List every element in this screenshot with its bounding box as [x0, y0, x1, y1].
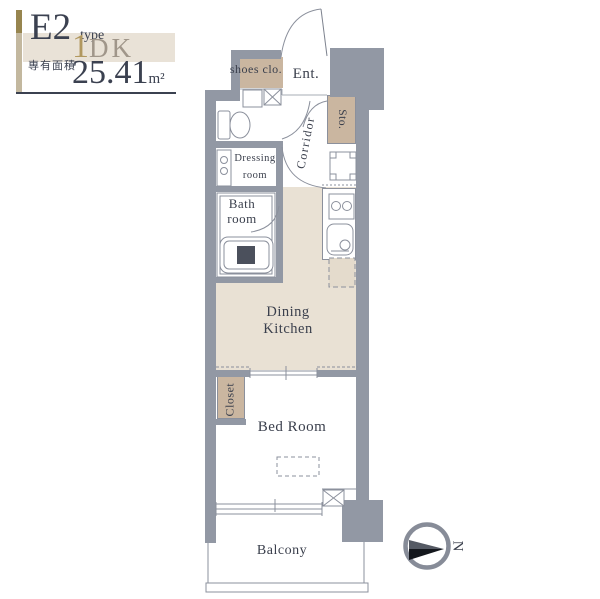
- bathtub: [220, 237, 273, 273]
- ac-unit-box: [277, 457, 319, 476]
- pipe-space-icon-bottom: [323, 490, 344, 506]
- balcony-outline: [206, 542, 368, 592]
- floorplan-page: { "header": { "plan_code": "E2", "plan_t…: [0, 0, 600, 599]
- washing-machine-pan: [330, 152, 356, 180]
- fixtures-layer: [0, 0, 600, 599]
- balcony-window: [216, 499, 322, 516]
- divider-sliding-door: [216, 366, 358, 380]
- entry-shelf-box: [243, 90, 262, 107]
- refrigerator-box: [329, 258, 355, 287]
- compass: [406, 525, 449, 568]
- dk-door-arc: [282, 147, 326, 188]
- entrance-door-arc: [281, 9, 327, 57]
- pipe-space-icon-top: [264, 89, 281, 105]
- kitchen-sink-fixture: [327, 224, 353, 255]
- stove-fixture: [329, 194, 354, 219]
- toilet-fixture: [218, 111, 250, 139]
- washbasin-fixture: [217, 150, 231, 186]
